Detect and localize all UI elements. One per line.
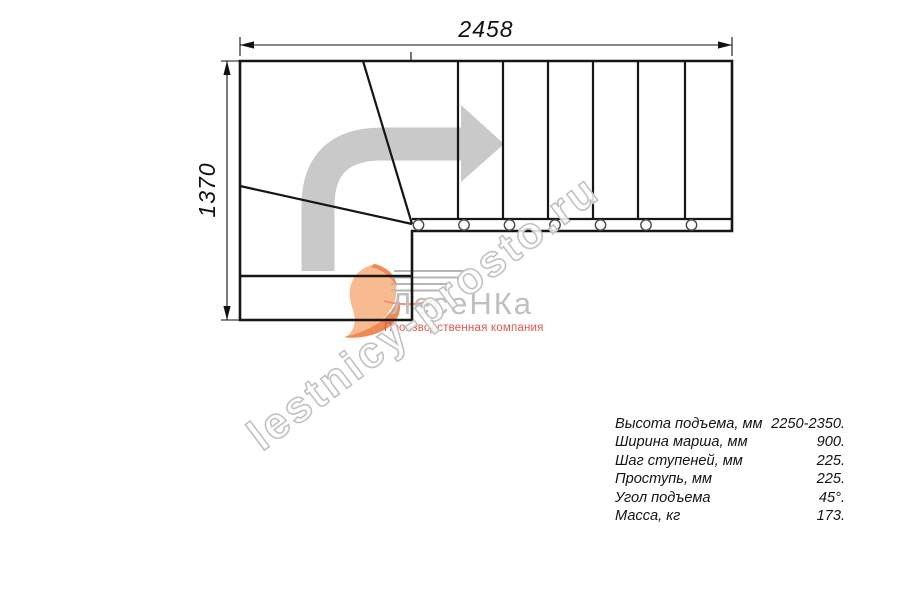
spec-value: 2250-2350.: [771, 415, 845, 433]
spec-value: 173.: [817, 507, 845, 525]
spec-row-angle: Угол подъема 45°.: [615, 489, 845, 507]
spec-value: 45°.: [819, 489, 845, 507]
spec-row-height: Высота подъема, мм 2250-2350.: [615, 415, 845, 433]
spec-label: Угол подъема: [615, 489, 710, 507]
spec-row-step-pitch: Шаг ступеней, мм 225.: [615, 452, 845, 470]
spec-row-flight-width: Ширина марша, мм 900.: [615, 433, 845, 451]
spec-label: Масса, кг: [615, 507, 680, 525]
diagonal-watermark-text: lestnicy-prosto.ru: [239, 165, 609, 460]
spec-row-tread-depth: Проступь, мм 225.: [615, 470, 845, 488]
spec-row-mass: Масса, кг 173.: [615, 507, 845, 525]
spec-value: 900.: [817, 433, 845, 451]
spec-label: Проступь, мм: [615, 470, 712, 488]
spec-value: 225.: [817, 452, 845, 470]
height-dimension-label: 1370: [194, 146, 220, 234]
spec-label: Высота подъема, мм: [615, 415, 763, 433]
stair-plan-canvas: ЛесеНКа Производственная компания: [0, 0, 900, 600]
spec-table: Высота подъема, мм 2250-2350. Ширина мар…: [615, 415, 845, 525]
spec-value: 225.: [817, 470, 845, 488]
width-dimension-label: 2458: [240, 16, 732, 43]
spec-label: Шаг ступеней, мм: [615, 452, 743, 470]
spec-label: Ширина марша, мм: [615, 433, 748, 451]
